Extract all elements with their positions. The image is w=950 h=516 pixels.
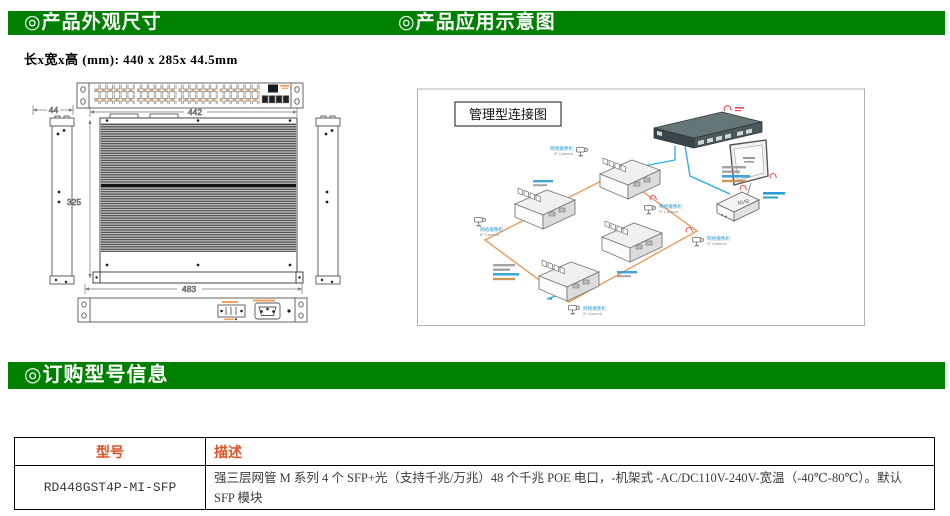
diagram-title-box: 管理型连接图 xyxy=(455,102,561,126)
datasheet-page: ◎产品外观尺寸 ◎产品应用示意图 长x宽x高 (mm): 440 x 285x … xyxy=(0,0,950,516)
model-description-cell: 强三层网管 M 系列 4 个 SFP+光（支持千兆/万兆）48 个千兆 POE … xyxy=(206,466,935,510)
right-side-view xyxy=(316,116,340,284)
dimension-drawing-svg: 44 442 325 xyxy=(10,80,350,352)
svg-text:IP Camera: IP Camera xyxy=(659,209,679,214)
rear-panel-view xyxy=(78,298,307,322)
application-diagram: 管理型连接图 xyxy=(417,88,865,328)
svg-text:44: 44 xyxy=(49,105,59,115)
svg-text:IP Camera: IP Camera xyxy=(554,151,574,156)
ordering-section-header-bar: ◎订购型号信息 xyxy=(8,362,945,389)
model-number-cell: RD448GST4P-MI-SFP xyxy=(15,466,206,510)
product-dimension-drawing: 44 442 325 xyxy=(10,80,350,352)
dimensions-note: 长x宽x高 (mm): 440 x 285x 44.5mm xyxy=(24,49,238,68)
dim-44: 44 xyxy=(33,105,73,115)
section-title-application: ◎产品应用示意图 xyxy=(398,11,556,35)
svg-text:483: 483 xyxy=(182,284,196,294)
application-diagram-svg: 管理型连接图 xyxy=(417,88,865,328)
table-header-row: 型号 描述 xyxy=(15,438,935,466)
column-header-model: 型号 xyxy=(15,438,206,466)
ordering-table: 型号 描述 RD448GST4P-MI-SFP 强三层网管 M 系列 4 个 S… xyxy=(14,437,935,510)
ground-screw xyxy=(287,309,290,312)
dim-483: 483 xyxy=(85,284,302,294)
section-title-ordering: ◎订购型号信息 xyxy=(24,362,168,389)
svg-text:管理型连接图: 管理型连接图 xyxy=(469,107,547,122)
svg-text:325: 325 xyxy=(67,197,81,207)
table-row: RD448GST4P-MI-SFP 强三层网管 M 系列 4 个 SFP+光（支… xyxy=(15,466,935,510)
section-title-appearance: ◎产品外观尺寸 xyxy=(24,11,162,35)
svg-text:442: 442 xyxy=(188,107,202,117)
console-port xyxy=(268,85,278,93)
column-header-description: 描述 xyxy=(206,438,935,466)
svg-text:IP Camera: IP Camera xyxy=(480,232,500,237)
top-view-body xyxy=(93,114,303,283)
top-section-header-bar: ◎产品外观尺寸 ◎产品应用示意图 xyxy=(8,11,945,35)
svg-text:IP Camera: IP Camera xyxy=(583,311,603,316)
front-panel-view xyxy=(77,83,303,108)
svg-text:IP Camera: IP Camera xyxy=(707,241,727,246)
heatsink-fins xyxy=(101,123,296,252)
